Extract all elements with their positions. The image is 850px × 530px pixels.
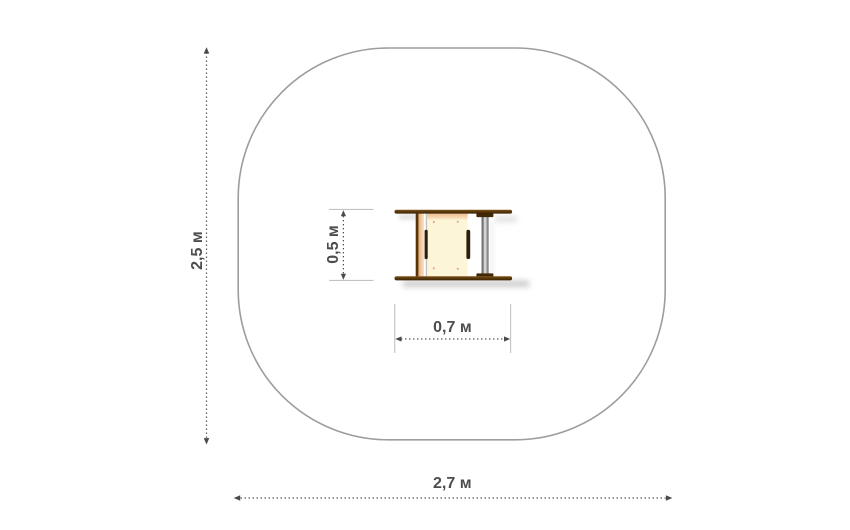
svg-text:0,5 м: 0,5 м — [325, 225, 342, 264]
svg-text:2,5 м: 2,5 м — [189, 231, 206, 270]
svg-text:0,7 м: 0,7 м — [433, 319, 472, 336]
svg-text:2,7 м: 2,7 м — [433, 475, 472, 492]
